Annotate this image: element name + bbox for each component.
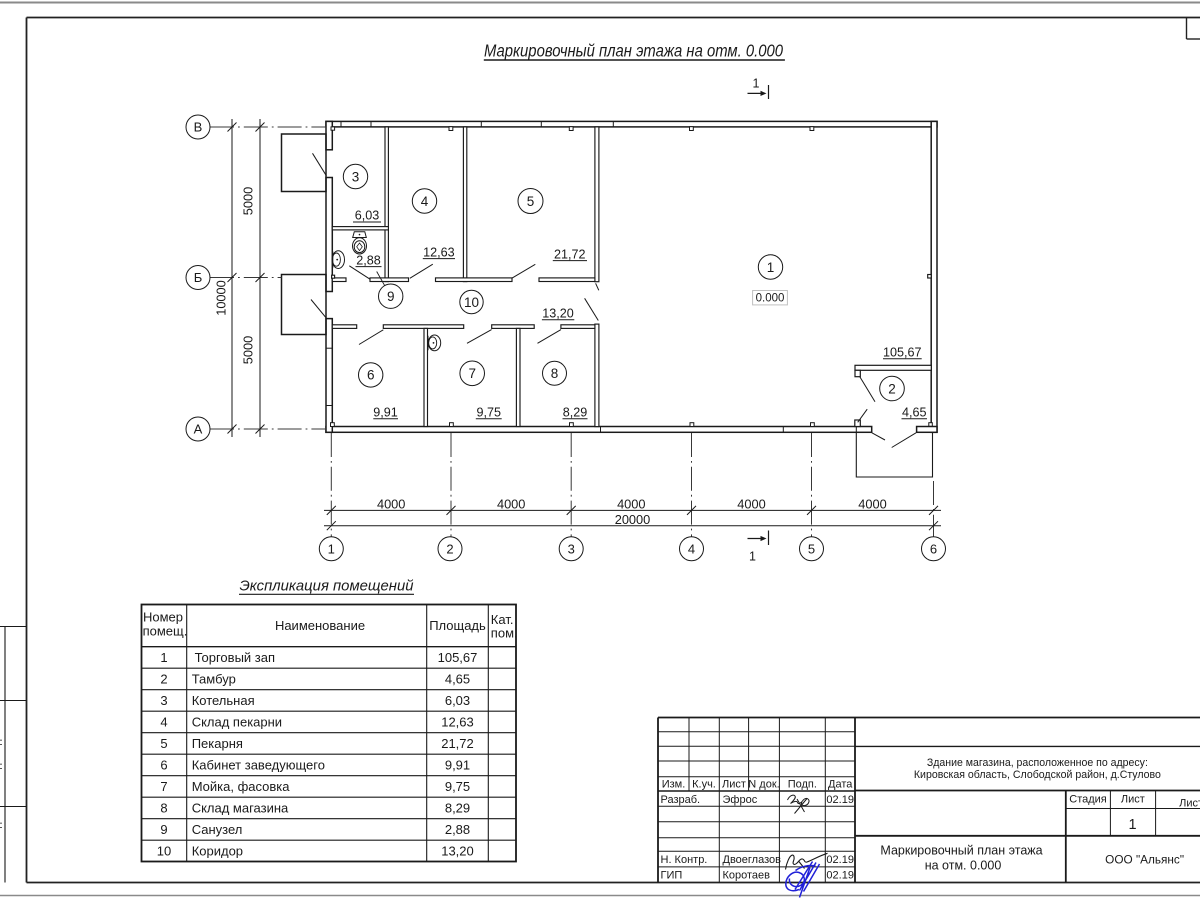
svg-text:Изм.: Изм. xyxy=(662,778,686,790)
svg-text:4000: 4000 xyxy=(497,496,525,511)
svg-text:Склад магазина: Склад магазина xyxy=(192,800,289,815)
svg-text:10: 10 xyxy=(157,843,171,858)
svg-text:1: 1 xyxy=(749,550,756,564)
svg-text:12,63: 12,63 xyxy=(423,245,455,259)
svg-text:В: В xyxy=(194,120,203,135)
svg-text:Стадия: Стадия xyxy=(1069,793,1107,805)
svg-text:9: 9 xyxy=(387,289,395,304)
svg-text:6,03: 6,03 xyxy=(445,693,470,708)
svg-text:9,91: 9,91 xyxy=(373,406,398,420)
svg-text:5: 5 xyxy=(527,194,535,209)
svg-text:1: 1 xyxy=(160,650,167,665)
svg-text:4000: 4000 xyxy=(737,496,765,511)
svg-text:Дата: Дата xyxy=(828,778,853,790)
svg-text:4000: 4000 xyxy=(377,496,405,511)
svg-text:2,88: 2,88 xyxy=(356,253,381,267)
svg-text:Маркировочный план этажа: Маркировочный план этажа xyxy=(880,844,1042,858)
svg-text:1: 1 xyxy=(1128,817,1136,833)
svg-text:8,29: 8,29 xyxy=(563,406,588,420)
svg-text:1: 1 xyxy=(753,77,760,91)
svg-text:на отм. 0.000: на отм. 0.000 xyxy=(925,858,1002,872)
svg-text:105,67: 105,67 xyxy=(883,346,922,360)
svg-text:02.19: 02.19 xyxy=(826,794,854,806)
svg-text:4000: 4000 xyxy=(617,496,645,511)
svg-text:Лист: Лист xyxy=(722,778,746,790)
svg-text:пом.: пом. xyxy=(491,626,518,641)
svg-text:21,72: 21,72 xyxy=(441,736,474,751)
svg-text:Маркировочный план этажа на от: Маркировочный план этажа на отм. 0.000 xyxy=(484,41,783,61)
svg-text:4,65: 4,65 xyxy=(445,671,470,686)
svg-text:Разраб.: Разраб. xyxy=(661,794,701,806)
svg-text:Площадь: Площадь xyxy=(429,618,486,633)
svg-text:4000: 4000 xyxy=(858,496,886,511)
svg-text:6: 6 xyxy=(930,541,937,556)
svg-text:Мойка, фасовка: Мойка, фасовка xyxy=(192,779,291,794)
svg-text:3: 3 xyxy=(352,169,360,184)
svg-text:7: 7 xyxy=(160,779,167,794)
svg-text:Подп. и дата: Подп. и дата xyxy=(0,724,3,781)
svg-text:20000: 20000 xyxy=(615,512,651,527)
svg-text:Коридор: Коридор xyxy=(192,843,243,858)
svg-text:Склад пекарни: Склад пекарни xyxy=(192,714,282,729)
svg-text:Торговый зап: Торговый зап xyxy=(195,650,275,665)
svg-text:Эфрос: Эфрос xyxy=(723,794,758,806)
svg-text:Тамбур: Тамбур xyxy=(192,671,236,686)
svg-text:Кабинет заведующего: Кабинет заведующего xyxy=(192,757,325,772)
svg-text:помещ.: помещ. xyxy=(143,624,188,639)
svg-text:5: 5 xyxy=(808,541,815,556)
svg-text:ООО "Альянс": ООО "Альянс" xyxy=(1105,852,1184,866)
svg-text:5: 5 xyxy=(160,736,167,751)
svg-text:13,20: 13,20 xyxy=(542,306,574,320)
svg-text:9,75: 9,75 xyxy=(476,406,501,420)
svg-text:Подп.: Подп. xyxy=(788,778,817,790)
svg-text:21,72: 21,72 xyxy=(554,247,586,261)
svg-text:2: 2 xyxy=(888,381,896,396)
svg-text:13,20: 13,20 xyxy=(441,843,474,858)
svg-text:Номер: Номер xyxy=(143,610,183,625)
svg-text:4,65: 4,65 xyxy=(902,406,927,420)
svg-text:Кировская область, Слободской: Кировская область, Слободской район, д.С… xyxy=(914,769,1161,781)
svg-text:Взам. инв. №: Взам. инв. № xyxy=(0,634,3,693)
svg-text:8: 8 xyxy=(551,366,559,381)
svg-text:5000: 5000 xyxy=(241,187,256,215)
svg-text:4: 4 xyxy=(160,714,167,729)
svg-text:Санузел: Санузел xyxy=(192,822,243,837)
svg-text:6: 6 xyxy=(160,757,167,772)
svg-text:10: 10 xyxy=(464,295,479,310)
svg-text:1: 1 xyxy=(328,541,335,556)
svg-text:N док.: N док. xyxy=(748,778,779,790)
svg-text:ГИП: ГИП xyxy=(661,869,683,881)
svg-text:6: 6 xyxy=(367,368,375,383)
svg-text:2: 2 xyxy=(160,671,167,686)
svg-text:Экспликация помещений: Экспликация помещений xyxy=(240,578,415,595)
svg-text:8,29: 8,29 xyxy=(445,800,470,815)
svg-text:2,88: 2,88 xyxy=(445,822,470,837)
svg-text:10000: 10000 xyxy=(214,280,229,316)
svg-text:Коротаев: Коротаев xyxy=(723,869,771,881)
svg-text:А: А xyxy=(194,422,203,437)
svg-text:5000: 5000 xyxy=(241,336,256,364)
svg-text:1: 1 xyxy=(767,260,775,275)
svg-text:Инв. № подл.: Инв. № подл. xyxy=(0,814,3,873)
svg-text:12,63: 12,63 xyxy=(441,714,474,729)
svg-text:Здание магазина, расположенное: Здание магазина, расположенное по адресу… xyxy=(927,757,1148,769)
svg-text:105,67: 105,67 xyxy=(438,650,478,665)
svg-text:К.уч.: К.уч. xyxy=(692,778,716,790)
svg-text:Наименование: Наименование xyxy=(275,618,365,633)
svg-text:4: 4 xyxy=(688,541,695,556)
svg-text:8: 8 xyxy=(160,800,167,815)
svg-text:2: 2 xyxy=(446,541,453,556)
svg-text:7: 7 xyxy=(468,366,476,381)
svg-text:02.19: 02.19 xyxy=(826,854,854,866)
svg-text:Двоеглазов: Двоеглазов xyxy=(723,854,782,866)
svg-text:Лист: Лист xyxy=(1121,793,1145,805)
svg-text:02.19: 02.19 xyxy=(826,869,854,881)
svg-text:Б: Б xyxy=(194,270,203,285)
svg-text:0.000: 0.000 xyxy=(756,292,785,304)
svg-text:6,03: 6,03 xyxy=(355,209,380,223)
svg-text:Н. Контр.: Н. Контр. xyxy=(661,854,708,866)
svg-text:3: 3 xyxy=(568,541,575,556)
svg-text:9: 9 xyxy=(160,822,167,837)
svg-text:9,75: 9,75 xyxy=(445,779,470,794)
svg-text:3: 3 xyxy=(160,693,167,708)
svg-text:9,91: 9,91 xyxy=(445,757,470,772)
svg-text:Листов: Листов xyxy=(1179,798,1200,810)
svg-text:Пекарня: Пекарня xyxy=(192,736,243,751)
svg-text:Котельная: Котельная xyxy=(192,693,255,708)
svg-text:4: 4 xyxy=(421,194,429,209)
